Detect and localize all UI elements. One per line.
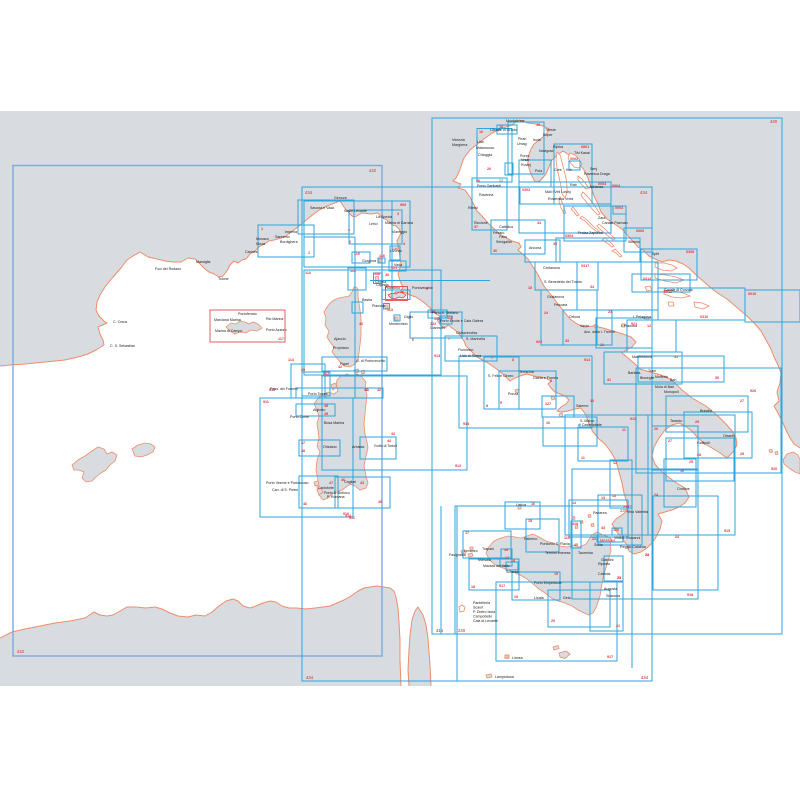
svg-text:Riccione: Riccione: [474, 221, 488, 225]
svg-text:Sibenic: Sibenic: [628, 240, 640, 244]
svg-text:Rimini: Rimini: [468, 206, 478, 210]
svg-text:C. S. Sebastian: C. S. Sebastian: [110, 344, 135, 348]
svg-text:Canale Pasman: Canale Pasman: [602, 221, 628, 225]
svg-text:912: 912: [323, 372, 329, 376]
svg-text:920: 920: [771, 467, 777, 471]
svg-text:Marsiglia: Marsiglia: [196, 260, 210, 264]
svg-text:Pola: Pola: [535, 169, 542, 173]
svg-text:Scilla: Scilla: [594, 543, 603, 547]
svg-text:20: 20: [551, 619, 555, 623]
svg-text:Marghera: Marghera: [452, 143, 467, 147]
svg-text:Ustica: Ustica: [516, 503, 526, 507]
svg-text:Crotone: Crotone: [677, 487, 690, 491]
svg-text:S. Felice Circeo: S. Felice Circeo: [488, 374, 513, 378]
svg-text:Cagliari: Cagliari: [344, 480, 356, 484]
svg-text:917: 917: [607, 655, 613, 659]
svg-text:0312: 0312: [643, 277, 651, 281]
svg-text:13: 13: [612, 494, 616, 498]
svg-text:Scauri: Scauri: [473, 606, 483, 610]
svg-text:Porto Garibaldi: Porto Garibaldi: [477, 184, 501, 188]
svg-text:114: 114: [288, 358, 295, 362]
svg-text:S. Marinella: S. Marinella: [466, 337, 485, 341]
svg-text:31: 31: [607, 378, 611, 382]
svg-text:Augusta: Augusta: [604, 587, 617, 591]
svg-text:Taranto: Taranto: [670, 419, 682, 423]
svg-text:40: 40: [359, 322, 363, 326]
svg-text:9: 9: [500, 401, 502, 405]
svg-text:Cannes: Cannes: [245, 250, 258, 254]
svg-text:29: 29: [695, 420, 699, 424]
svg-text:Chioggia: Chioggia: [478, 153, 492, 157]
svg-text:8: 8: [512, 358, 514, 362]
svg-text:Porto Azzuro: Porto Azzuro: [266, 328, 287, 332]
svg-text:6: 6: [412, 338, 414, 342]
svg-text:S. Benedetto del Tronto: S. Benedetto del Tronto: [544, 280, 582, 284]
svg-text:127: 127: [545, 402, 551, 406]
svg-text:16: 16: [531, 502, 535, 506]
svg-text:110: 110: [305, 271, 311, 275]
svg-text:di Castellabate: di Castellabate: [578, 423, 602, 427]
svg-text:Marsala: Marsala: [478, 558, 491, 562]
svg-text:Monfalcone: Monfalcone: [506, 119, 525, 123]
svg-text:C. Creus: C. Creus: [113, 320, 127, 324]
svg-text:Linosa: Linosa: [512, 656, 523, 660]
svg-text:915: 915: [630, 417, 636, 421]
svg-text:Fiumicino: Fiumicino: [458, 348, 473, 352]
svg-text:17: 17: [499, 179, 503, 183]
svg-text:Palermo: Palermo: [524, 537, 537, 541]
svg-text:418: 418: [572, 522, 578, 526]
svg-text:Ancona: Ancona: [529, 246, 541, 250]
svg-text:Bordighera: Bordighera: [280, 240, 298, 244]
svg-text:Trieste: Trieste: [545, 128, 556, 132]
svg-text:Levanzo: Levanzo: [464, 549, 478, 553]
svg-text:Cattolica: Cattolica: [499, 225, 513, 229]
svg-text:0064: 0064: [612, 184, 621, 188]
svg-text:Lido: Lido: [477, 140, 484, 144]
svg-text:912: 912: [455, 464, 461, 468]
svg-text:Golfo di Tortoli: Golfo di Tortoli: [374, 444, 397, 448]
svg-text:Ajaccio: Ajaccio: [334, 337, 346, 341]
svg-text:Panarea: Panarea: [593, 511, 607, 515]
svg-text:116: 116: [379, 254, 385, 258]
svg-text:Anc. della I. Tremiti: Anc. della I. Tremiti: [584, 330, 615, 334]
svg-text:Porto S. Stefano: Porto S. Stefano: [432, 311, 458, 315]
svg-text:Savona e Vado: Savona e Vado: [310, 206, 334, 210]
svg-text:Trapani: Trapani: [482, 547, 494, 551]
svg-text:Otranto: Otranto: [723, 434, 735, 438]
svg-text:45: 45: [574, 543, 578, 547]
svg-text:Novigrad: Novigrad: [539, 149, 553, 153]
svg-text:18: 18: [471, 585, 475, 589]
svg-text:Civitanova: Civitanova: [543, 266, 560, 270]
svg-text:Bastia: Bastia: [362, 298, 372, 302]
svg-text:17: 17: [465, 531, 469, 535]
svg-text:17: 17: [505, 556, 509, 560]
svg-text:Bari: Bari: [670, 378, 677, 382]
svg-text:Oristano: Oristano: [323, 445, 337, 449]
svg-text:434: 434: [306, 675, 314, 680]
svg-text:48: 48: [301, 449, 305, 453]
svg-text:12: 12: [613, 461, 617, 465]
svg-text:Marina di Carrara: Marina di Carrara: [385, 221, 413, 225]
svg-text:Trani: Trani: [648, 369, 656, 373]
svg-text:Marina di Campo: Marina di Campo: [215, 329, 242, 333]
svg-text:911: 911: [263, 400, 269, 404]
svg-text:41: 41: [365, 388, 369, 392]
svg-text:Taormina: Taormina: [578, 551, 593, 555]
svg-text:117: 117: [278, 337, 284, 341]
svg-text:Propriano: Propriano: [333, 346, 349, 350]
svg-text:Split: Split: [652, 252, 659, 256]
svg-text:Figari: Figari: [340, 362, 349, 366]
svg-text:19: 19: [554, 572, 558, 576]
svg-text:230: 230: [623, 505, 629, 509]
svg-text:P. Dietro Isola: P. Dietro Isola: [473, 610, 495, 614]
svg-text:7: 7: [448, 337, 450, 341]
svg-text:40: 40: [385, 273, 389, 277]
svg-text:19: 19: [514, 595, 518, 599]
svg-text:Messina: Messina: [600, 538, 616, 543]
svg-text:La Spezia: La Spezia: [376, 215, 392, 219]
svg-text:Porto Conte: Porto Conte: [290, 415, 309, 419]
svg-text:Marciana Marina: Marciana Marina: [214, 318, 241, 322]
svg-text:Gela: Gela: [563, 596, 571, 600]
svg-text:0801: 0801: [581, 145, 589, 149]
svg-text:18: 18: [511, 559, 515, 563]
svg-text:36: 36: [493, 249, 497, 253]
svg-text:Pescara: Pescara: [554, 303, 567, 307]
svg-text:Giglio: Giglio: [404, 315, 413, 319]
svg-text:Krk: Krk: [566, 168, 572, 172]
svg-text:Civitavecchia: Civitavecchia: [456, 331, 477, 335]
svg-text:28: 28: [697, 453, 701, 457]
svg-text:15: 15: [528, 286, 532, 290]
svg-text:Termini Imerese: Termini Imerese: [545, 551, 571, 555]
svg-text:42: 42: [377, 388, 381, 392]
svg-text:Vada: Vada: [394, 263, 402, 267]
svg-text:Giulianova: Giulianova: [547, 295, 564, 299]
svg-text:31: 31: [674, 355, 678, 359]
svg-text:23: 23: [645, 553, 649, 557]
svg-text:Malamocco: Malamocco: [476, 146, 494, 150]
svg-text:10: 10: [590, 399, 594, 403]
svg-text:Viareggio: Viareggio: [392, 230, 407, 234]
svg-text:Pantelleria: Pantelleria: [473, 601, 490, 605]
svg-text:Litorale di Grado: Litorale di Grado: [490, 128, 517, 132]
svg-text:Gorgona: Gorgona: [362, 259, 376, 263]
svg-text:Rijeka: Rijeka: [553, 145, 563, 149]
svg-text:Porto Torres: Porto Torres: [308, 392, 328, 396]
svg-text:Bisceglie: Bisceglie: [640, 376, 654, 380]
svg-text:0006: 0006: [636, 229, 644, 233]
svg-text:917: 917: [499, 584, 505, 588]
svg-text:3: 3: [397, 212, 399, 216]
svg-text:922: 922: [536, 340, 542, 344]
svg-text:115: 115: [564, 536, 570, 540]
svg-text:8: 8: [486, 404, 488, 408]
svg-text:Lampedusa: Lampedusa: [495, 675, 514, 679]
svg-text:0317: 0317: [581, 264, 589, 268]
svg-text:0310: 0310: [700, 315, 708, 319]
svg-text:432: 432: [17, 649, 25, 654]
svg-text:16: 16: [479, 130, 483, 134]
svg-text:Porto Empedocle: Porto Empedocle: [534, 581, 562, 585]
svg-text:Favignana: Favignana: [449, 553, 466, 557]
svg-text:Isola: Isola: [533, 138, 541, 142]
svg-text:0302: 0302: [522, 188, 530, 192]
svg-text:26: 26: [654, 427, 658, 431]
svg-text:Umag: Umag: [517, 142, 527, 146]
svg-text:110: 110: [354, 252, 360, 256]
svg-text:13: 13: [601, 496, 605, 500]
svg-text:Monopoli: Monopoli: [664, 390, 679, 394]
svg-text:914: 914: [584, 358, 591, 362]
svg-text:Capraia: Capraia: [376, 283, 389, 287]
svg-text:Ponza: Ponza: [508, 392, 518, 396]
svg-text:434: 434: [640, 190, 648, 195]
svg-text:Gallipoli: Gallipoli: [697, 441, 710, 445]
svg-text:Zara: Zara: [598, 216, 605, 220]
svg-text:Prolaz Zapuntel: Prolaz Zapuntel: [578, 231, 603, 235]
svg-text:Bosa Marina: Bosa Marina: [324, 421, 344, 425]
svg-text:Livorno: Livorno: [390, 249, 402, 253]
svg-text:Riposto: Riposto: [598, 562, 610, 566]
svg-text:Fano: Fano: [499, 235, 507, 239]
svg-text:0010: 0010: [748, 292, 756, 296]
svg-text:Porticello S. Flavia: Porticello S. Flavia: [540, 542, 570, 546]
svg-text:45: 45: [324, 412, 328, 416]
svg-text:23: 23: [617, 576, 621, 580]
svg-text:11: 11: [622, 428, 626, 432]
svg-text:Molfetta: Molfetta: [655, 375, 668, 379]
svg-text:23: 23: [608, 310, 612, 314]
svg-text:Portovecchio: Portovecchio: [412, 286, 433, 290]
svg-text:Porto Ercole e Cala Galera: Porto Ercole e Cala Galera: [440, 319, 483, 323]
svg-text:Gaeta e Formia: Gaeta e Formia: [533, 376, 558, 380]
svg-text:Imperia: Imperia: [285, 230, 297, 234]
svg-text:Mazara del Vallo: Mazara del Vallo: [483, 564, 510, 568]
svg-text:Siracusa: Siracusa: [606, 594, 620, 598]
svg-text:Porto Vesme e Portoscuso: Porto Vesme e Portoscuso: [266, 481, 309, 485]
svg-text:230: 230: [458, 628, 466, 633]
svg-text:Pianosa: Pianosa: [372, 304, 385, 308]
svg-text:Vibo Valentia: Vibo Valentia: [627, 510, 648, 514]
svg-text:126: 126: [613, 528, 619, 532]
svg-text:Terracina: Terracina: [519, 370, 534, 374]
svg-text:Piran: Piran: [518, 137, 526, 141]
svg-text:I. Pelagosa: I. Pelagosa: [633, 315, 651, 319]
svg-text:909: 909: [400, 203, 406, 207]
svg-text:Rab: Rab: [570, 183, 577, 187]
svg-text:Montecristo: Montecristo: [389, 322, 408, 326]
svg-text:914: 914: [463, 422, 470, 426]
svg-text:49: 49: [301, 368, 305, 372]
svg-text:434: 434: [641, 675, 649, 680]
svg-text:Portoferraio: Portoferraio: [238, 312, 257, 316]
svg-text:21: 21: [616, 624, 620, 628]
svg-text:112: 112: [350, 269, 356, 273]
svg-text:Monaco: Monaco: [256, 237, 269, 241]
svg-text:47: 47: [301, 441, 305, 445]
svg-text:33: 33: [565, 339, 569, 343]
svg-text:Ravenna: Ravenna: [479, 193, 493, 197]
svg-text:46: 46: [303, 502, 307, 506]
svg-text:47: 47: [329, 481, 333, 485]
svg-text:434: 434: [305, 190, 313, 195]
svg-text:Cres: Cres: [554, 168, 562, 172]
svg-text:926: 926: [750, 389, 756, 393]
svg-text:Salerno: Salerno: [576, 404, 588, 408]
svg-text:25: 25: [689, 460, 693, 464]
svg-text:Brindisi: Brindisi: [700, 409, 712, 413]
svg-text:Tihi Kanal: Tihi Kanal: [574, 151, 590, 155]
svg-text:Senigallia: Senigallia: [496, 240, 512, 244]
svg-text:Alghero: Alghero: [313, 408, 325, 412]
svg-text:I. Pianosa: I. Pianosa: [621, 324, 637, 328]
svg-text:1: 1: [261, 227, 263, 231]
svg-text:Vrsar: Vrsar: [521, 158, 530, 162]
svg-text:415: 415: [436, 628, 444, 633]
svg-text:12: 12: [647, 324, 651, 328]
svg-text:Venezia: Venezia: [452, 138, 465, 142]
svg-text:Rovenska Vrela: Rovenska Vrela: [548, 197, 573, 201]
svg-text:430: 430: [770, 119, 778, 124]
svg-text:Manfredonia: Manfredonia: [632, 355, 652, 359]
svg-text:Vasto: Vasto: [580, 324, 589, 328]
svg-text:G. di Portovecchio: G. di Portovecchio: [356, 359, 385, 363]
svg-text:Sestri Levante: Sestri Levante: [344, 209, 367, 213]
svg-text:0308: 0308: [686, 250, 694, 254]
svg-text:918: 918: [687, 593, 693, 597]
svg-text:20: 20: [487, 167, 491, 171]
svg-text:45: 45: [378, 500, 382, 504]
svg-text:35: 35: [553, 242, 557, 246]
svg-text:Pass. dei Fornelli: Pass. dei Fornelli: [270, 387, 298, 391]
svg-text:Sanremo: Sanremo: [275, 235, 290, 239]
svg-text:913: 913: [434, 354, 440, 358]
svg-text:2: 2: [349, 240, 351, 244]
svg-text:16: 16: [680, 469, 684, 473]
svg-text:Canale di Curzola: Canale di Curzola: [664, 288, 693, 292]
svg-text:10: 10: [546, 421, 550, 425]
svg-text:28: 28: [740, 452, 744, 456]
svg-text:Lido di Roma: Lido di Roma: [460, 354, 481, 358]
svg-text:11: 11: [581, 456, 585, 460]
svg-text:Giannutri: Giannutri: [430, 326, 445, 330]
svg-text:2: 2: [348, 228, 350, 232]
svg-text:Rovinj: Rovinj: [521, 163, 531, 167]
svg-text:1: 1: [308, 251, 310, 255]
svg-text:Lerici: Lerici: [369, 222, 378, 226]
svg-text:19: 19: [536, 123, 540, 127]
svg-text:Villa S. Giovanni: Villa S. Giovanni: [614, 536, 641, 540]
svg-text:Ortona: Ortona: [569, 315, 580, 319]
svg-text:0004: 0004: [615, 206, 624, 210]
svg-text:Campobello: Campobello: [473, 615, 492, 619]
svg-text:0002: 0002: [570, 157, 578, 161]
svg-text:911: 911: [349, 516, 355, 520]
svg-text:16: 16: [504, 548, 508, 552]
svg-text:Barletta: Barletta: [628, 371, 640, 375]
svg-text:Arbatax: Arbatax: [352, 445, 365, 449]
svg-text:113: 113: [387, 308, 393, 312]
svg-text:27: 27: [668, 439, 672, 443]
svg-text:15: 15: [528, 519, 532, 523]
svg-text:Licata: Licata: [534, 596, 544, 600]
svg-text:43: 43: [601, 526, 605, 530]
svg-text:Mola di Bari: Mola di Bari: [655, 385, 674, 389]
svg-text:7: 7: [491, 356, 493, 360]
svg-text:Can. di S. Pietro: Can. di S. Pietro: [272, 488, 298, 492]
svg-text:Reggio Calabria: Reggio Calabria: [620, 545, 646, 549]
svg-text:26: 26: [476, 179, 480, 183]
svg-text:116: 116: [374, 272, 380, 276]
svg-text:Rio Marina: Rio Marina: [266, 317, 283, 321]
svg-text:37: 37: [474, 225, 478, 229]
svg-text:30: 30: [715, 376, 719, 380]
svg-text:Senj: Senj: [590, 167, 597, 171]
svg-text:Jablanac: Jablanac: [589, 185, 604, 189]
svg-text:P. Romana: P. Romana: [327, 495, 345, 499]
svg-text:Cala di Levante: Cala di Levante: [473, 619, 498, 623]
svg-text:Mali i Veli Losinj: Mali i Veli Losinj: [545, 190, 571, 194]
svg-text:Koper: Koper: [543, 133, 553, 137]
svg-text:Ravenica Draga: Ravenica Draga: [584, 172, 610, 176]
svg-text:Catania: Catania: [598, 572, 610, 576]
svg-text:12: 12: [600, 343, 604, 347]
svg-text:43: 43: [391, 432, 395, 436]
svg-text:0304: 0304: [565, 234, 574, 238]
svg-text:27: 27: [740, 399, 744, 403]
svg-text:Sciacca: Sciacca: [506, 570, 519, 574]
svg-text:432: 432: [369, 168, 377, 173]
svg-text:22: 22: [592, 537, 596, 541]
svg-text:915: 915: [724, 529, 730, 533]
svg-text:Foci del Rodano: Foci del Rodano: [155, 267, 181, 271]
svg-text:Genova: Genova: [334, 196, 347, 200]
svg-text:Nizza: Nizza: [256, 242, 265, 246]
svg-text:Tolone: Tolone: [218, 277, 229, 281]
svg-text:Carloforte: Carloforte: [318, 486, 334, 490]
